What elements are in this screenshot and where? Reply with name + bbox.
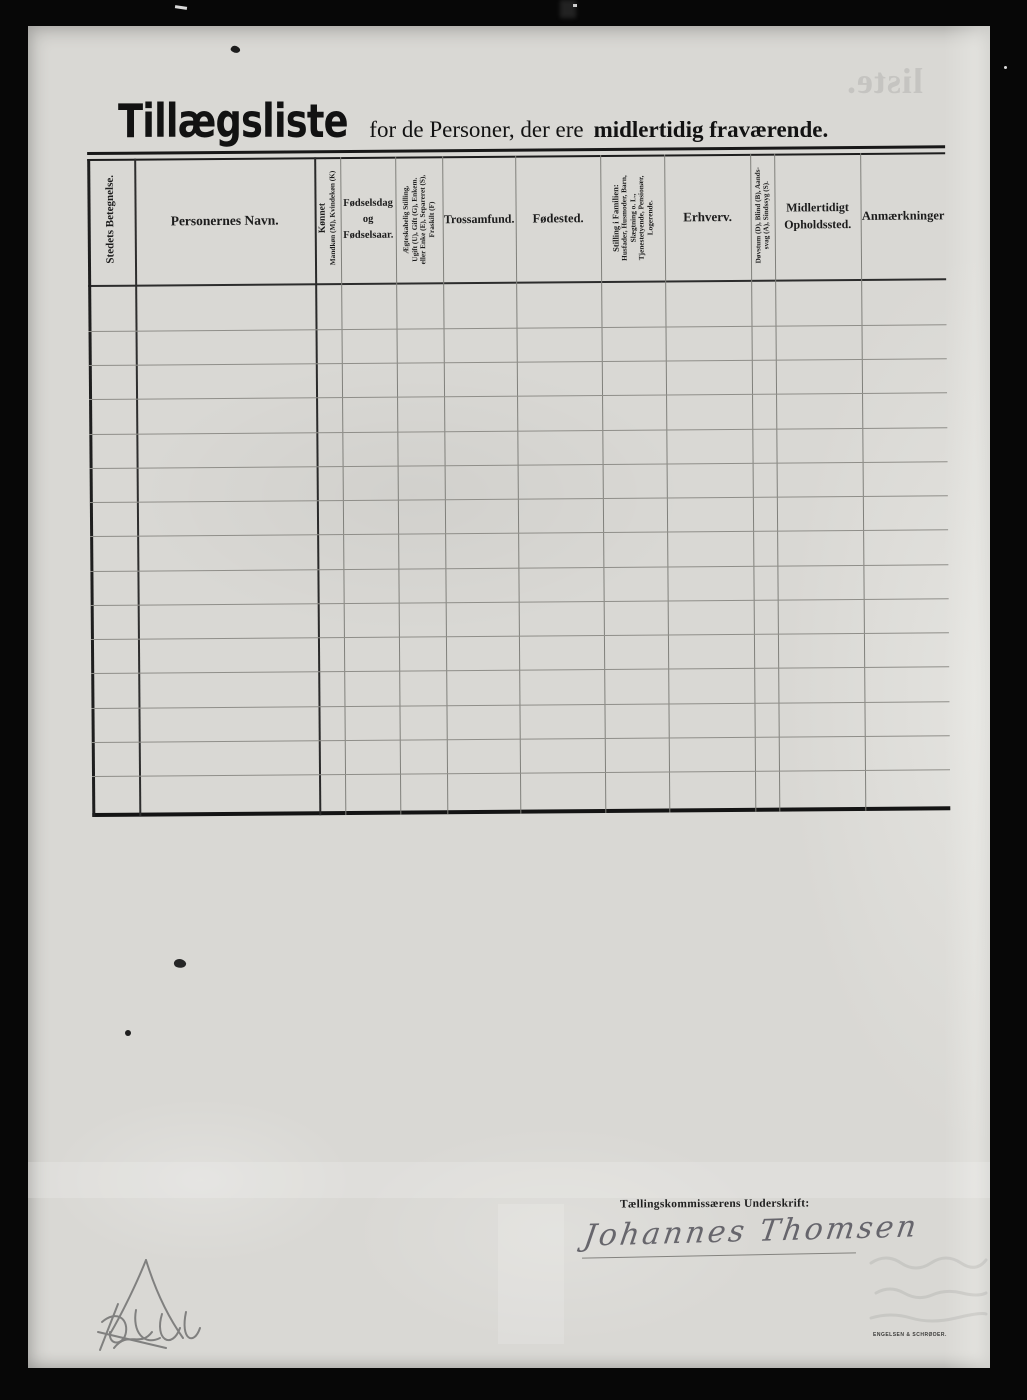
ink-blot: [173, 957, 187, 970]
census-table: Stedets Betegnelse. Personernes Navn. Kø…: [87, 145, 950, 820]
col-header-anmaerkninger: Anmærkninger: [860, 152, 946, 279]
scan-light-band: [28, 1162, 990, 1198]
signature-label: Tællingskommissærens Underskrift:: [620, 1198, 810, 1211]
table-column-line: [87, 159, 95, 817]
col-header-personernes-navn: Personernes Navn.: [134, 157, 315, 284]
page-title-main: Tillægsliste: [118, 94, 348, 148]
scanned-census-form-page: liste. Tillægsliste for de Personer, der…: [28, 26, 990, 1368]
page-title-emphasis: midlertidig fraværende.: [594, 117, 829, 142]
col-header-fodselsdag: Fødselsdag og Fødselsaar.: [340, 157, 396, 283]
col-header-erhverv: Erhverv.: [664, 154, 751, 281]
scan-smudge: [560, 0, 576, 18]
col-header-stedets-betegnelse: Stedets Betegnelse.: [104, 158, 118, 280]
col-header-stilling-i-familien: Stilling i Familien: Husfader, Husmoder,…: [610, 157, 655, 279]
col-header-midlertidigt-opholdssted: Midlertidigt Opholdssted.: [774, 153, 861, 280]
table-column-line: [600, 155, 606, 813]
pencil-doodle: [88, 1252, 238, 1357]
col-header-aegteskabelig-stilling: Ægteskabelig Stilling, Ugift (U), Gift (…: [401, 157, 436, 282]
col-header-dovstum-blind: Døvstum (D), Blind (B), Aands- svag (A),…: [754, 154, 772, 276]
signature-underline: [582, 1252, 856, 1258]
ink-dot: [125, 1030, 131, 1036]
col-header-trossamfund: Trossamfund.: [442, 156, 516, 283]
page-title-rest: for de Personer, der ere: [369, 117, 583, 142]
page-title: Tillægsliste for de Personer, der ere mi…: [118, 94, 968, 148]
ink-blot: [230, 44, 241, 55]
table-column-line: [395, 157, 401, 815]
scan-light-patch: [498, 1204, 564, 1344]
col-header-konnet: Kønnet Mandkøn (M), Kvindekøn (K): [317, 157, 338, 279]
dust-speck: [1004, 66, 1007, 69]
bleedthrough-scribbles: [866, 1248, 990, 1340]
dust-speck: [175, 5, 187, 10]
col-header-fodested: Fødested.: [515, 155, 601, 282]
